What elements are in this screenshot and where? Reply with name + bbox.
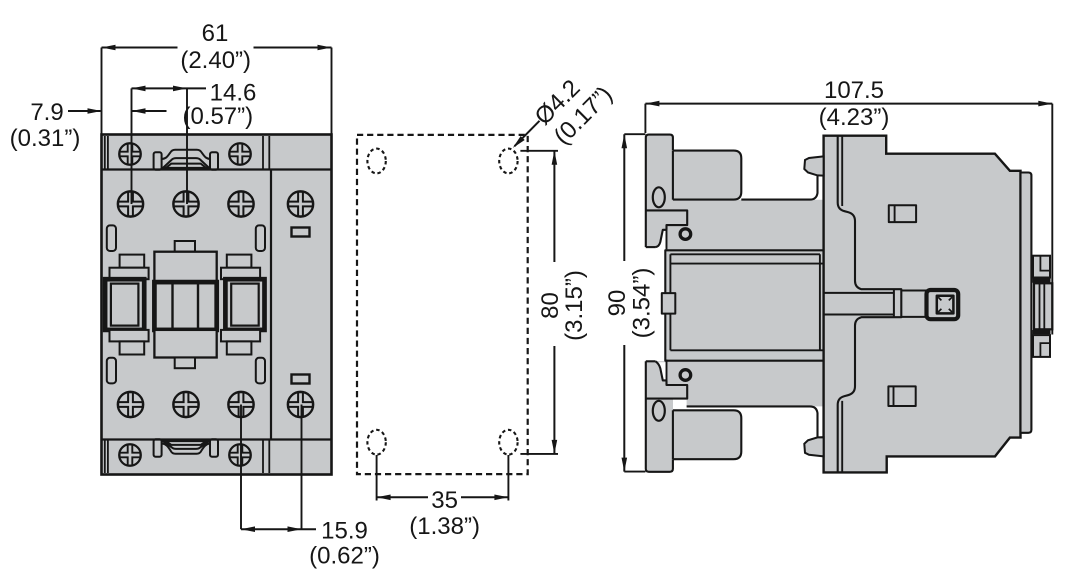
svg-text:7.9: 7.9	[30, 99, 63, 126]
svg-text:107.5: 107.5	[824, 77, 884, 104]
svg-text:(0.57”): (0.57”)	[182, 103, 253, 130]
svg-text:35: 35	[431, 487, 458, 514]
svg-text:(3.15”): (3.15”)	[561, 270, 588, 341]
svg-text:(1.38”): (1.38”)	[409, 513, 480, 540]
svg-text:61: 61	[202, 20, 229, 47]
svg-text:(4.23”): (4.23”)	[819, 104, 890, 131]
svg-text:(3.54”): (3.54”)	[629, 268, 656, 339]
svg-text:(0.62”): (0.62”)	[309, 543, 380, 570]
svg-text:80: 80	[537, 292, 564, 319]
svg-text:90: 90	[604, 290, 631, 317]
svg-text:15.9: 15.9	[321, 518, 368, 545]
svg-text:(2.40”): (2.40”)	[180, 47, 251, 74]
svg-text:(0.31”): (0.31”)	[10, 125, 81, 152]
